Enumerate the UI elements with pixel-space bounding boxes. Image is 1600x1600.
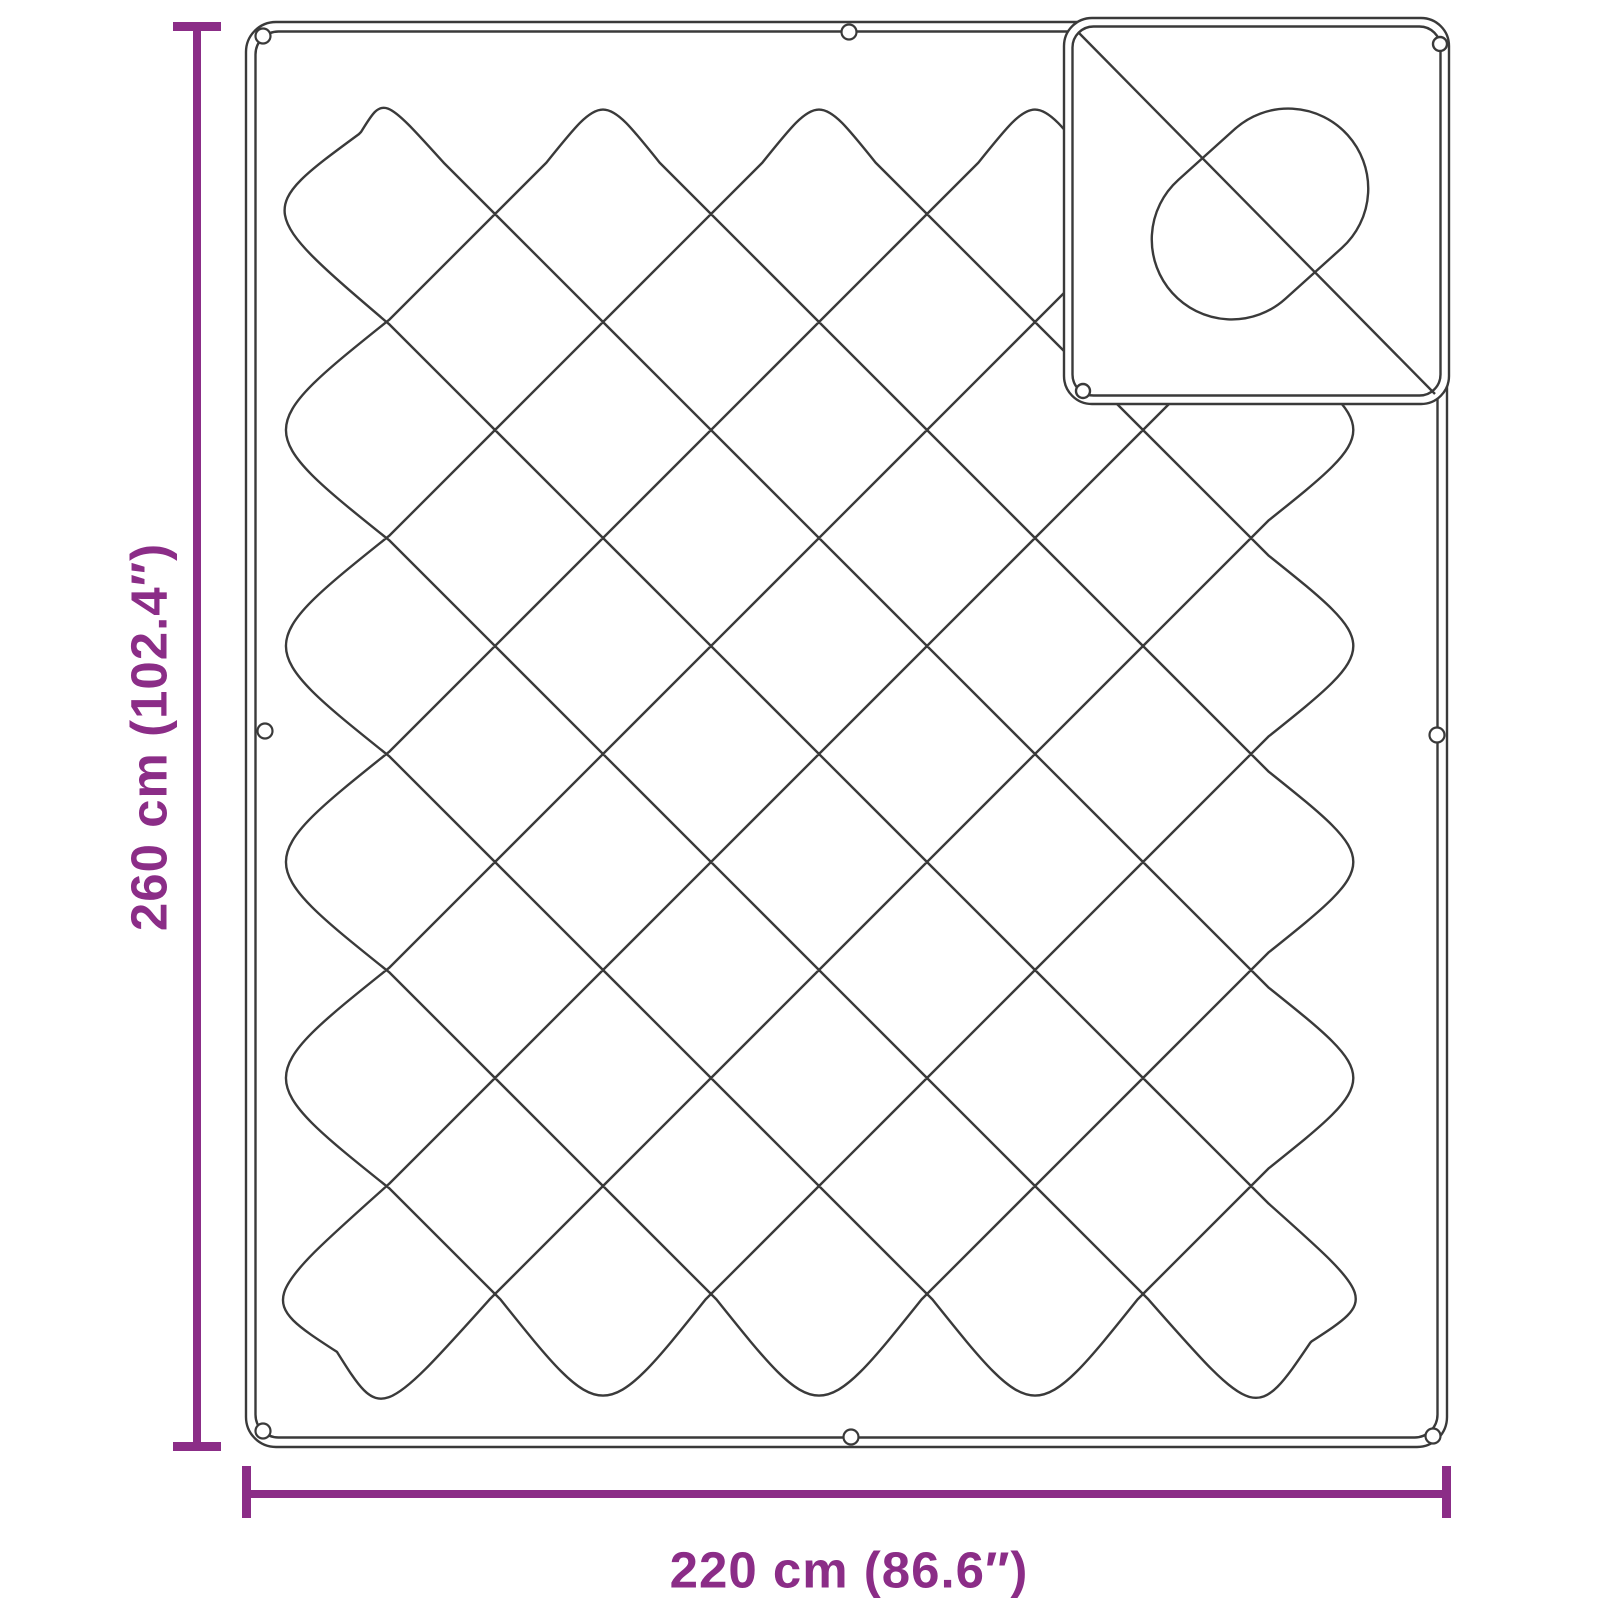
width-dimension-line <box>246 1490 1446 1498</box>
diagram-canvas: 260 cm (102.4″) 220 cm (86.6″) <box>0 0 1600 1600</box>
grommet-icon <box>844 1430 859 1445</box>
grommet-icon <box>842 25 857 40</box>
grommet-icon <box>1433 37 1447 51</box>
width-dimension-label: 220 cm (86.6″) <box>670 1541 1029 1598</box>
corner-flap <box>1064 18 1449 404</box>
grommet-icon <box>256 1424 271 1439</box>
width-dimension-right-cap <box>1442 1466 1451 1518</box>
height-dimension-label: 260 cm (102.4″) <box>120 543 177 931</box>
height-dimension-bottom-cap <box>173 1442 221 1451</box>
height-dimension: 260 cm (102.4″) <box>120 22 221 1451</box>
grommet-icon <box>1430 728 1445 743</box>
grommet-icon <box>256 29 271 44</box>
width-dimension: 220 cm (86.6″) <box>242 1466 1451 1598</box>
grommet-icon <box>1076 384 1090 398</box>
grommet-icon <box>1426 1429 1441 1444</box>
product-dimension-diagram: 260 cm (102.4″) 220 cm (86.6″) <box>0 0 1600 1600</box>
height-dimension-line <box>193 26 201 1447</box>
grommet-icon <box>258 724 273 739</box>
